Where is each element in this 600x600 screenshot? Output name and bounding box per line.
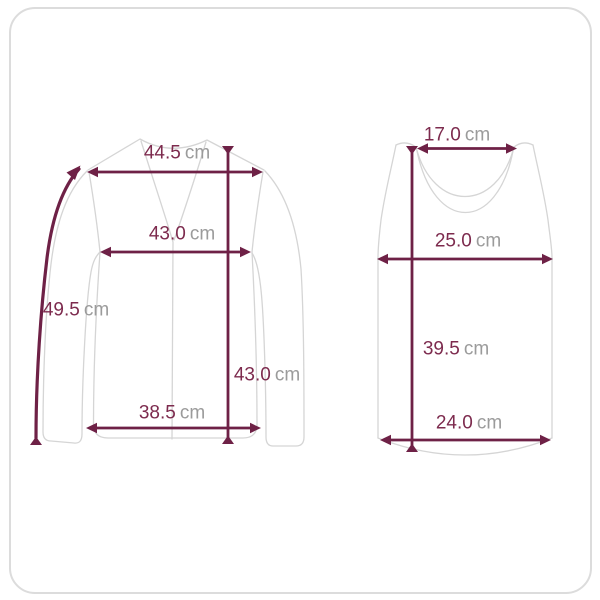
measurement-unit: cm: [84, 300, 109, 321]
tank-measure-lines: [377, 143, 553, 452]
measurement-value: 17.0: [424, 125, 461, 146]
measurement-unit: cm: [275, 365, 300, 386]
cardigan-vneck-left-placket: [141, 141, 173, 439]
measurement-label-cardigan-chest: 43.0cm: [149, 225, 215, 244]
caret-down-icon: [406, 146, 418, 155]
tank-strap-top-right: [514, 143, 533, 147]
arrow-left-icon: [86, 423, 97, 433]
measurement-value: 44.5: [144, 143, 181, 164]
measurement-value: 49.5: [43, 300, 80, 321]
measurement-unit: cm: [190, 224, 215, 245]
tank-strap-armhole-right: [533, 145, 552, 258]
tank-strap-armhole-left: [378, 145, 396, 258]
measurement-unit: cm: [185, 143, 210, 164]
measurement-value: 43.0: [149, 224, 186, 245]
cardigan-measure-lines: [30, 146, 263, 445]
measurement-label-tank-chest: 25.0cm: [435, 232, 501, 251]
measurement-value: 24.0: [436, 413, 473, 434]
measurement-unit: cm: [464, 339, 489, 360]
measurement-value: 38.5: [139, 403, 176, 424]
arrow-up-right-icon: [67, 166, 81, 181]
measurement-unit: cm: [477, 413, 502, 434]
measurement-value: 25.0: [435, 231, 472, 252]
cardigan-figure: [43, 139, 304, 446]
measurement-label-cardigan-shoulder: 44.5cm: [144, 144, 210, 163]
measurement-unit: cm: [465, 125, 490, 146]
cardigan-armhole-right: [252, 172, 263, 252]
measurement-label-tank-length: 39.5cm: [423, 340, 489, 359]
arrow-left-icon: [100, 247, 111, 257]
measurement-value: 39.5: [423, 339, 460, 360]
arrow-right-icon: [240, 247, 251, 257]
arrow-right-icon: [540, 435, 551, 445]
measurement-label-tank-neck: 17.0cm: [424, 126, 490, 145]
measurement-label-cardigan-length: 43.0cm: [234, 366, 300, 385]
measurement-label-tank-hem: 24.0cm: [436, 414, 502, 433]
measurement-label-cardigan-sleeve: 49.5cm: [43, 301, 109, 320]
measurement-unit: cm: [476, 231, 501, 252]
arrow-right-icon: [506, 143, 517, 153]
measurement-unit: cm: [180, 403, 205, 424]
tank-neckline-inner: [417, 151, 513, 213]
cardigan-sleeve-right: [252, 171, 304, 446]
cardigan-armhole-left: [89, 172, 100, 252]
size-guide-screenshot: { "colors": { "background": "#ffffff", "…: [0, 0, 600, 600]
arrow-left-icon: [380, 435, 391, 445]
measurement-label-cardigan-hem: 38.5cm: [139, 404, 205, 423]
tank-top-figure: [378, 143, 552, 455]
measurement-value: 43.0: [234, 365, 271, 386]
caret-up-icon: [30, 437, 42, 446]
caret-up-icon: [222, 436, 234, 445]
arrow-left-icon: [87, 167, 98, 177]
